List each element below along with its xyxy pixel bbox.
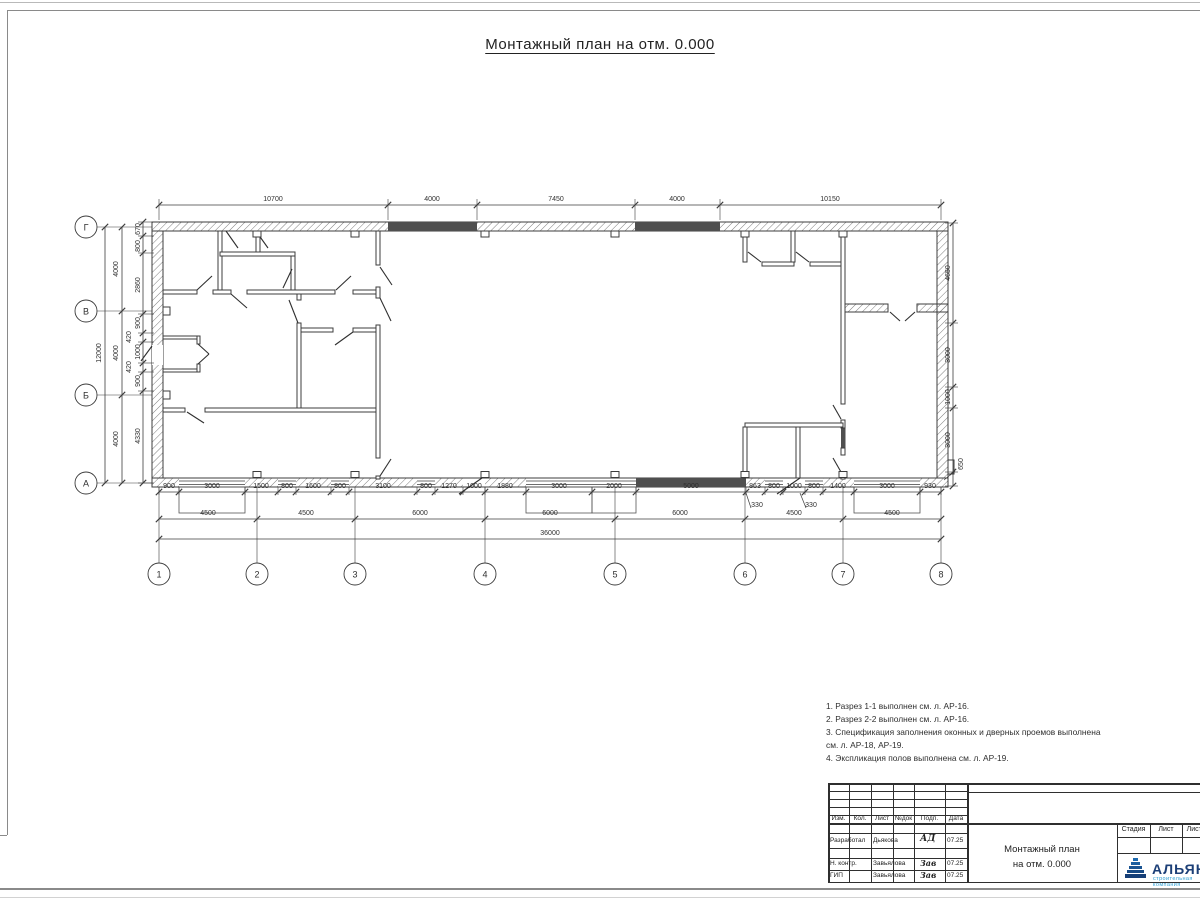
dim-text: 36000 xyxy=(540,530,560,537)
dim-text: 3000 xyxy=(879,483,895,490)
tb-stage-header: Стадия xyxy=(1117,826,1150,833)
dim-text: 4000 xyxy=(113,345,120,361)
dim-text: 800 xyxy=(420,483,432,490)
dim-text: 800 xyxy=(281,483,293,490)
dim-text: 1600 xyxy=(305,483,321,490)
dim-text: 1500 xyxy=(253,483,269,490)
dim-text: 4500 xyxy=(786,510,802,517)
tb-sheets-header: Листов xyxy=(1182,826,1200,833)
axis-label: 6 xyxy=(742,570,747,580)
note-line: см. л. АР-18, АР-19. xyxy=(826,739,1101,752)
dim-text: 4000 xyxy=(669,196,685,203)
dim-text: 12000 xyxy=(96,343,103,363)
tb-col-kol: Кол. xyxy=(849,815,871,822)
tb-signature: Зав xyxy=(920,870,936,880)
dim-text: 650 xyxy=(958,458,965,470)
dim-text: 4330 xyxy=(135,428,142,444)
axis-label: 5 xyxy=(612,570,617,580)
dim-text: 3000 xyxy=(551,483,567,490)
axis-label: 1 xyxy=(156,570,161,580)
axis-label: А xyxy=(83,479,89,489)
tb-sheet-header: Лист xyxy=(1150,826,1182,833)
dim-text: 800 xyxy=(768,483,780,490)
dim-text: 6000 xyxy=(412,510,428,517)
note-line: 4. Экспликация полов выполнена см. л. АР… xyxy=(826,752,1101,765)
dim-text: 1000 xyxy=(466,483,482,490)
dim-text: 4500 xyxy=(298,510,314,517)
dim-text: 4500 xyxy=(200,510,216,517)
tb-doc-title-1: Монтажный план xyxy=(967,844,1117,855)
floor-plan: 10700 4000 7450 4000 10150 900 3000 1500… xyxy=(0,0,1200,900)
dim-text: 5000 xyxy=(683,483,699,490)
dim-text: 900 xyxy=(135,317,142,329)
tb-col-list: Лист xyxy=(871,815,893,822)
tb-col-data: Дата xyxy=(945,815,967,822)
dim-text: 4650 xyxy=(945,265,952,281)
tb-doc-title-2: на отм. 0.000 xyxy=(967,859,1117,870)
tb-name: Завьялова xyxy=(873,860,905,867)
company-logo-icon xyxy=(1122,856,1150,882)
tb-role: Разработал xyxy=(830,837,865,844)
tb-col-izm: Изм. xyxy=(828,815,849,822)
dim-text: 4500 xyxy=(884,510,900,517)
axis-label: Г xyxy=(84,223,89,233)
tb-col-ndok: №док xyxy=(893,815,914,822)
tb-signature: АД xyxy=(920,834,935,844)
drawing-sheet: Монтажный план на отм. 0.000 xyxy=(0,0,1200,900)
dim-text: 1270 xyxy=(441,483,457,490)
tb-date: 07.25 xyxy=(947,872,963,879)
dim-text: 1400 xyxy=(830,483,846,490)
axis-label: 2 xyxy=(254,570,259,580)
tb-role: ГИП xyxy=(830,872,843,879)
tb-date: 07.25 xyxy=(947,837,963,844)
axis-label: 3 xyxy=(352,570,357,580)
axis-label: 4 xyxy=(482,570,487,580)
dim-text: 2860 xyxy=(135,277,142,293)
axis-labels: 1 2 3 4 5 6 7 8 Г В Б А xyxy=(83,223,944,580)
dim-text: 6000 xyxy=(672,510,688,517)
dim-text: 670 xyxy=(135,223,142,235)
interior-walls xyxy=(163,231,845,479)
dim-text: 3000 xyxy=(945,432,952,448)
tb-col-podp: Подп. xyxy=(914,815,945,822)
dim-text: 4000 xyxy=(113,261,120,277)
dim-text: 900 xyxy=(163,483,175,490)
dim-text: 4000 xyxy=(424,196,440,203)
tb-name: Завьялова xyxy=(873,872,905,879)
note-line: 3. Спецификация заполнения оконных и две… xyxy=(826,726,1101,739)
dim-text: 1000 xyxy=(135,344,142,360)
axis-label: Б xyxy=(83,391,89,401)
tb-date: 07.25 xyxy=(947,860,963,867)
wall-openings xyxy=(152,222,920,513)
company-brand-subtitle: строительная компания xyxy=(1153,876,1200,888)
dim-text: 330 xyxy=(805,502,817,509)
dim-text: 3000 xyxy=(204,483,220,490)
tb-signature: Зав xyxy=(920,858,936,868)
dim-text: 1000 xyxy=(945,389,952,405)
dim-text: 800 xyxy=(334,483,346,490)
dim-text: 863 xyxy=(749,483,761,490)
dim-text: 7450 xyxy=(548,196,564,203)
axis-label: 8 xyxy=(938,570,943,580)
dim-text: 4000 xyxy=(113,431,120,447)
dim-text: 1000 xyxy=(786,483,802,490)
tb-name: Дьякова xyxy=(873,837,898,844)
dim-text: 10150 xyxy=(820,196,840,203)
note-line: 1. Разрез 1-1 выполнен см. л. АР-16. xyxy=(826,700,1101,713)
dim-text: 3000 xyxy=(945,347,952,363)
axis-label: 7 xyxy=(840,570,845,580)
company-brand-name: АЛЬЯНС xyxy=(1152,861,1200,877)
dim-text: 10700 xyxy=(263,196,283,203)
axis-circles xyxy=(75,216,952,585)
dim-text: 3100 xyxy=(375,483,391,490)
dim-text: 930 xyxy=(924,483,936,490)
dim-text: 6000 xyxy=(542,510,558,517)
axis-label: В xyxy=(83,307,89,317)
dim-text: 420 xyxy=(126,361,133,373)
dim-text: 330 xyxy=(751,502,763,509)
dim-text: 1880 xyxy=(497,483,513,490)
dim-text: 900 xyxy=(135,375,142,387)
note-line: 2. Разрез 2-2 выполнен см. л. АР-16. xyxy=(826,713,1101,726)
dim-text: 420 xyxy=(126,331,133,343)
dim-text: 2000 xyxy=(606,483,622,490)
tb-role: Н. контр. xyxy=(830,860,857,867)
notes-block: 1. Разрез 1-1 выполнен см. л. АР-16. 2. … xyxy=(826,700,1101,765)
dim-text: 800 xyxy=(808,483,820,490)
dim-text: 800 xyxy=(135,240,142,252)
